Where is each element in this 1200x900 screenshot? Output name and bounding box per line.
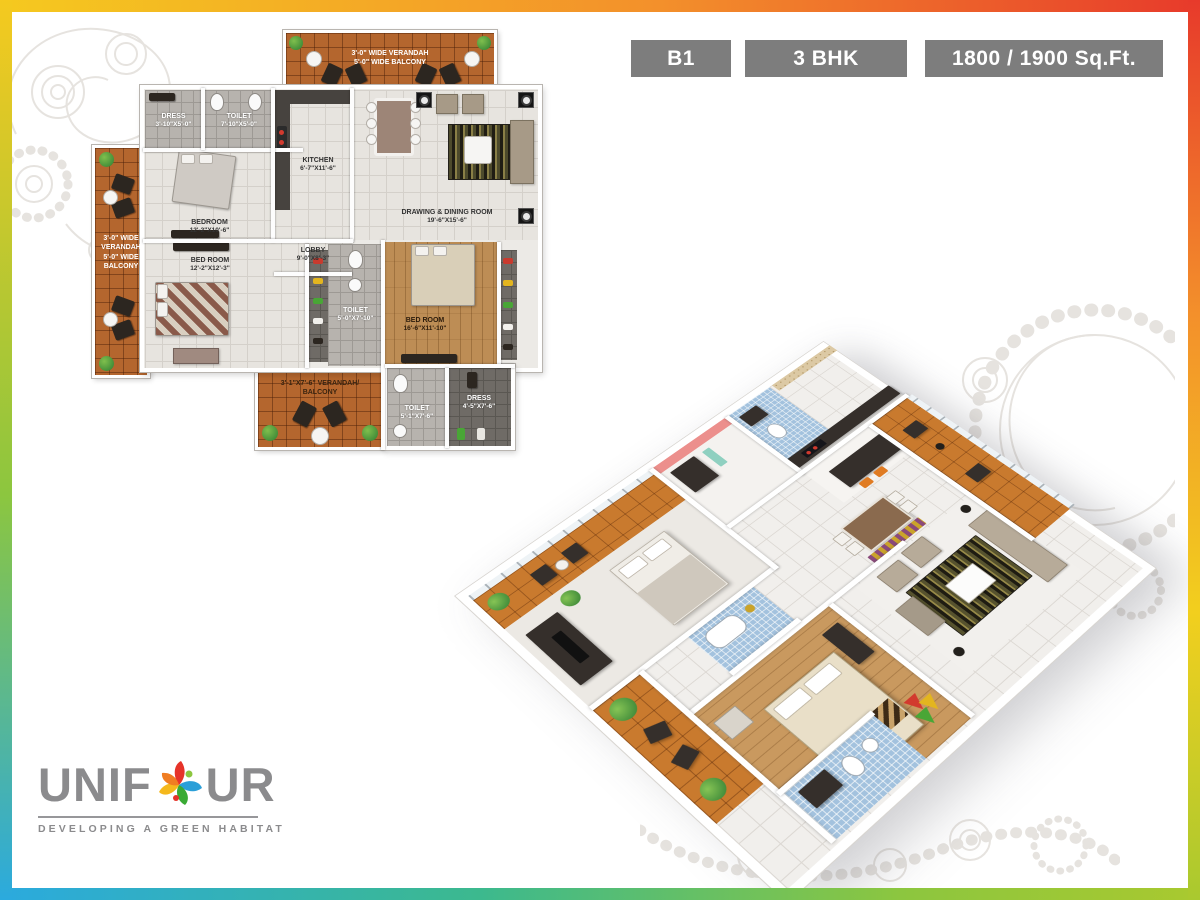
plant xyxy=(694,773,732,806)
lounge-chair xyxy=(965,463,991,483)
bed-pillow xyxy=(157,284,168,299)
wall xyxy=(143,239,353,243)
shelf-item xyxy=(503,344,513,350)
wall xyxy=(381,240,385,450)
verandah-chair xyxy=(292,400,317,427)
unifour-logo: UNIF UR DEVELOPING A GREEN HABITAT xyxy=(38,758,263,835)
armchair xyxy=(713,705,754,740)
floor-plan-2d: 3'-0" WIDE VERANDAH 5'-0" WIDE BALCONY 3… xyxy=(85,28,565,453)
speaker xyxy=(416,92,432,108)
verandah-bottom: 3'-1"X7'-6" VERANDAH/ BALCONY xyxy=(255,366,385,450)
room-bedroom-3: BED ROOM16'-6"X11'-10" xyxy=(383,242,499,366)
unifour-pinwheel-icon xyxy=(153,758,205,810)
armchair xyxy=(462,94,484,114)
tv-unit xyxy=(173,242,229,251)
mirror xyxy=(457,428,465,440)
shelf-item xyxy=(313,278,323,284)
logo-text-start: UNIF xyxy=(38,761,152,808)
wc xyxy=(837,752,870,780)
plant xyxy=(483,589,514,614)
logo-tagline: DEVELOPING A GREEN HABITAT xyxy=(38,823,263,835)
dining-chair xyxy=(410,134,421,145)
dining-chair xyxy=(410,118,421,129)
bed-pillow xyxy=(181,154,195,164)
frame-edge-bottom xyxy=(0,888,1200,900)
balcony-chair xyxy=(643,720,673,744)
wc xyxy=(763,421,790,441)
plant xyxy=(362,425,378,441)
verandah-top-label2: 5'-0" WIDE BALCONY xyxy=(354,59,426,66)
plant xyxy=(289,36,303,50)
plant xyxy=(604,693,643,726)
verandah-chair xyxy=(322,400,347,427)
bed-pillow xyxy=(415,246,429,256)
dining-table xyxy=(374,98,414,156)
floor-lamp xyxy=(958,503,973,514)
wc xyxy=(393,374,408,393)
wall xyxy=(143,148,303,152)
room-dress-2: DRESS4'-5"X7'-6" xyxy=(447,368,511,446)
room-drawing-dining: DRAWING & DINING ROOM19'-6"X15'-6" xyxy=(352,90,538,240)
verandah-left-label: 3'-0" WIDE xyxy=(103,235,138,242)
logo-divider xyxy=(38,816,258,818)
basin xyxy=(348,278,362,292)
mirror xyxy=(702,447,728,466)
floor-lamp xyxy=(743,603,757,614)
verandah-table xyxy=(103,190,118,205)
logo-text-end: UR xyxy=(206,761,276,808)
wall xyxy=(497,242,501,368)
coffee-table xyxy=(464,136,492,164)
room-toilet-3: TOILET5'-1"X7'-6" xyxy=(387,368,447,446)
plant xyxy=(556,587,585,610)
plant xyxy=(262,425,278,441)
vanity xyxy=(739,405,769,426)
frame-edge-left xyxy=(0,0,12,900)
bed-pillow xyxy=(199,154,213,164)
kitchen-counter xyxy=(274,90,352,104)
shelf-item xyxy=(503,258,513,264)
wc xyxy=(210,93,224,111)
shelf-item xyxy=(503,324,513,330)
room-toilet-1: TOILET7'-10"X5'-0" xyxy=(204,90,274,150)
wall xyxy=(274,272,352,276)
dining-chair xyxy=(366,134,377,145)
room-dress-1: DRESS3'-10"X5'-0" xyxy=(145,90,202,150)
basin xyxy=(393,424,407,438)
dresser xyxy=(149,93,175,101)
room-bedroom-1: BEDROOM12'-2"X10'-6" xyxy=(145,152,274,240)
shelf-item xyxy=(313,298,323,304)
verandah-table xyxy=(103,312,118,327)
floor-lamp xyxy=(951,645,967,658)
wc xyxy=(248,93,262,111)
dresser xyxy=(467,372,477,388)
shelf-item xyxy=(313,318,323,324)
bed-throw xyxy=(445,272,473,302)
plant xyxy=(99,152,114,167)
frame-edge-right xyxy=(1188,0,1200,900)
plant xyxy=(477,36,491,50)
brochure-page: B1 3 BHK 1800 / 1900 Sq.Ft. 3'-0" WIDE V… xyxy=(0,0,1200,900)
verandah-bottom-label: 3'-1"X7'-6" VERANDAH/ xyxy=(281,380,359,387)
verandah-top-label: 3'-0" WIDE VERANDAH xyxy=(352,50,429,57)
shelf-column xyxy=(308,250,328,362)
frame-edge-top xyxy=(0,0,1200,12)
lounge-chair xyxy=(902,420,928,439)
balcony-chair xyxy=(530,564,558,586)
dining-chair xyxy=(366,102,377,113)
bench xyxy=(173,348,219,364)
armchair xyxy=(436,94,458,114)
dining-chair xyxy=(366,118,377,129)
hob-burner xyxy=(279,130,284,135)
tv-unit xyxy=(401,354,457,363)
speaker xyxy=(518,208,534,224)
badge-unit: B1 xyxy=(631,40,731,77)
wall xyxy=(385,364,515,368)
speaker xyxy=(518,92,534,108)
shelf-item xyxy=(503,280,513,286)
balcony-chair xyxy=(671,744,700,770)
plant xyxy=(99,356,114,371)
shelf-item xyxy=(313,338,323,344)
badge-area: 1800 / 1900 Sq.Ft. xyxy=(925,40,1163,77)
lamp xyxy=(933,442,946,452)
room-kitchen: KITCHEN6'-7"X11'-6" xyxy=(274,90,352,240)
hob-burner xyxy=(279,140,284,145)
badge-bhk: 3 BHK xyxy=(745,40,907,77)
shelf-item xyxy=(503,302,513,308)
bed-pillow xyxy=(157,302,168,317)
basin xyxy=(858,735,883,756)
verandah-table xyxy=(311,427,329,445)
mirror xyxy=(477,428,485,440)
shelf-column-right xyxy=(499,250,517,360)
bed-pillow xyxy=(433,246,447,256)
sofa xyxy=(510,120,534,184)
